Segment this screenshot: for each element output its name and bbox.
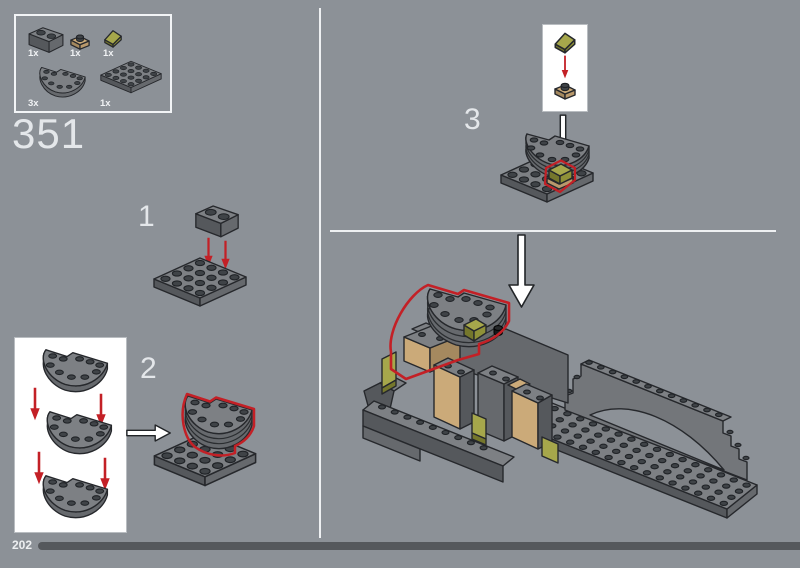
half-circle-plate-icon — [24, 62, 92, 100]
step-number: 351 — [12, 110, 85, 158]
half-circle-plate-illustration — [21, 468, 117, 522]
part-qty-label: 1x — [70, 48, 81, 59]
substep2-parts-panel — [14, 337, 127, 533]
substep3-callout-box — [542, 24, 588, 112]
substep1-brick-illustration — [192, 200, 242, 239]
substep-1-number: 1 — [138, 200, 155, 234]
instruction-page: 1x 1x 1x 3x 1x 351 1 2 — [0, 0, 800, 568]
substep2-assembly-illustration — [146, 382, 274, 498]
parts-box: 1x 1x 1x 3x 1x — [14, 14, 172, 113]
part-qty-label: 3x — [28, 98, 39, 109]
horizontal-divider — [330, 230, 776, 232]
progress-bar — [38, 542, 800, 550]
olive-slope-icon — [102, 28, 124, 48]
red-arrow-icon — [559, 55, 571, 79]
main-model-illustration — [360, 233, 796, 535]
vertical-divider — [319, 8, 321, 538]
page-number: 202 — [12, 538, 32, 552]
part-qty-label: 1x — [100, 98, 111, 109]
olive-slope-illustration — [552, 30, 578, 54]
tan-plate-illustration — [552, 79, 578, 101]
substep-2-number: 2 — [140, 352, 157, 386]
substep3-assembly-illustration — [497, 126, 622, 210]
part-qty-label: 1x — [28, 48, 39, 59]
plate-4x4-icon — [98, 56, 164, 98]
substep1-plate-illustration — [150, 250, 250, 314]
substep-3-number: 3 — [464, 103, 481, 137]
